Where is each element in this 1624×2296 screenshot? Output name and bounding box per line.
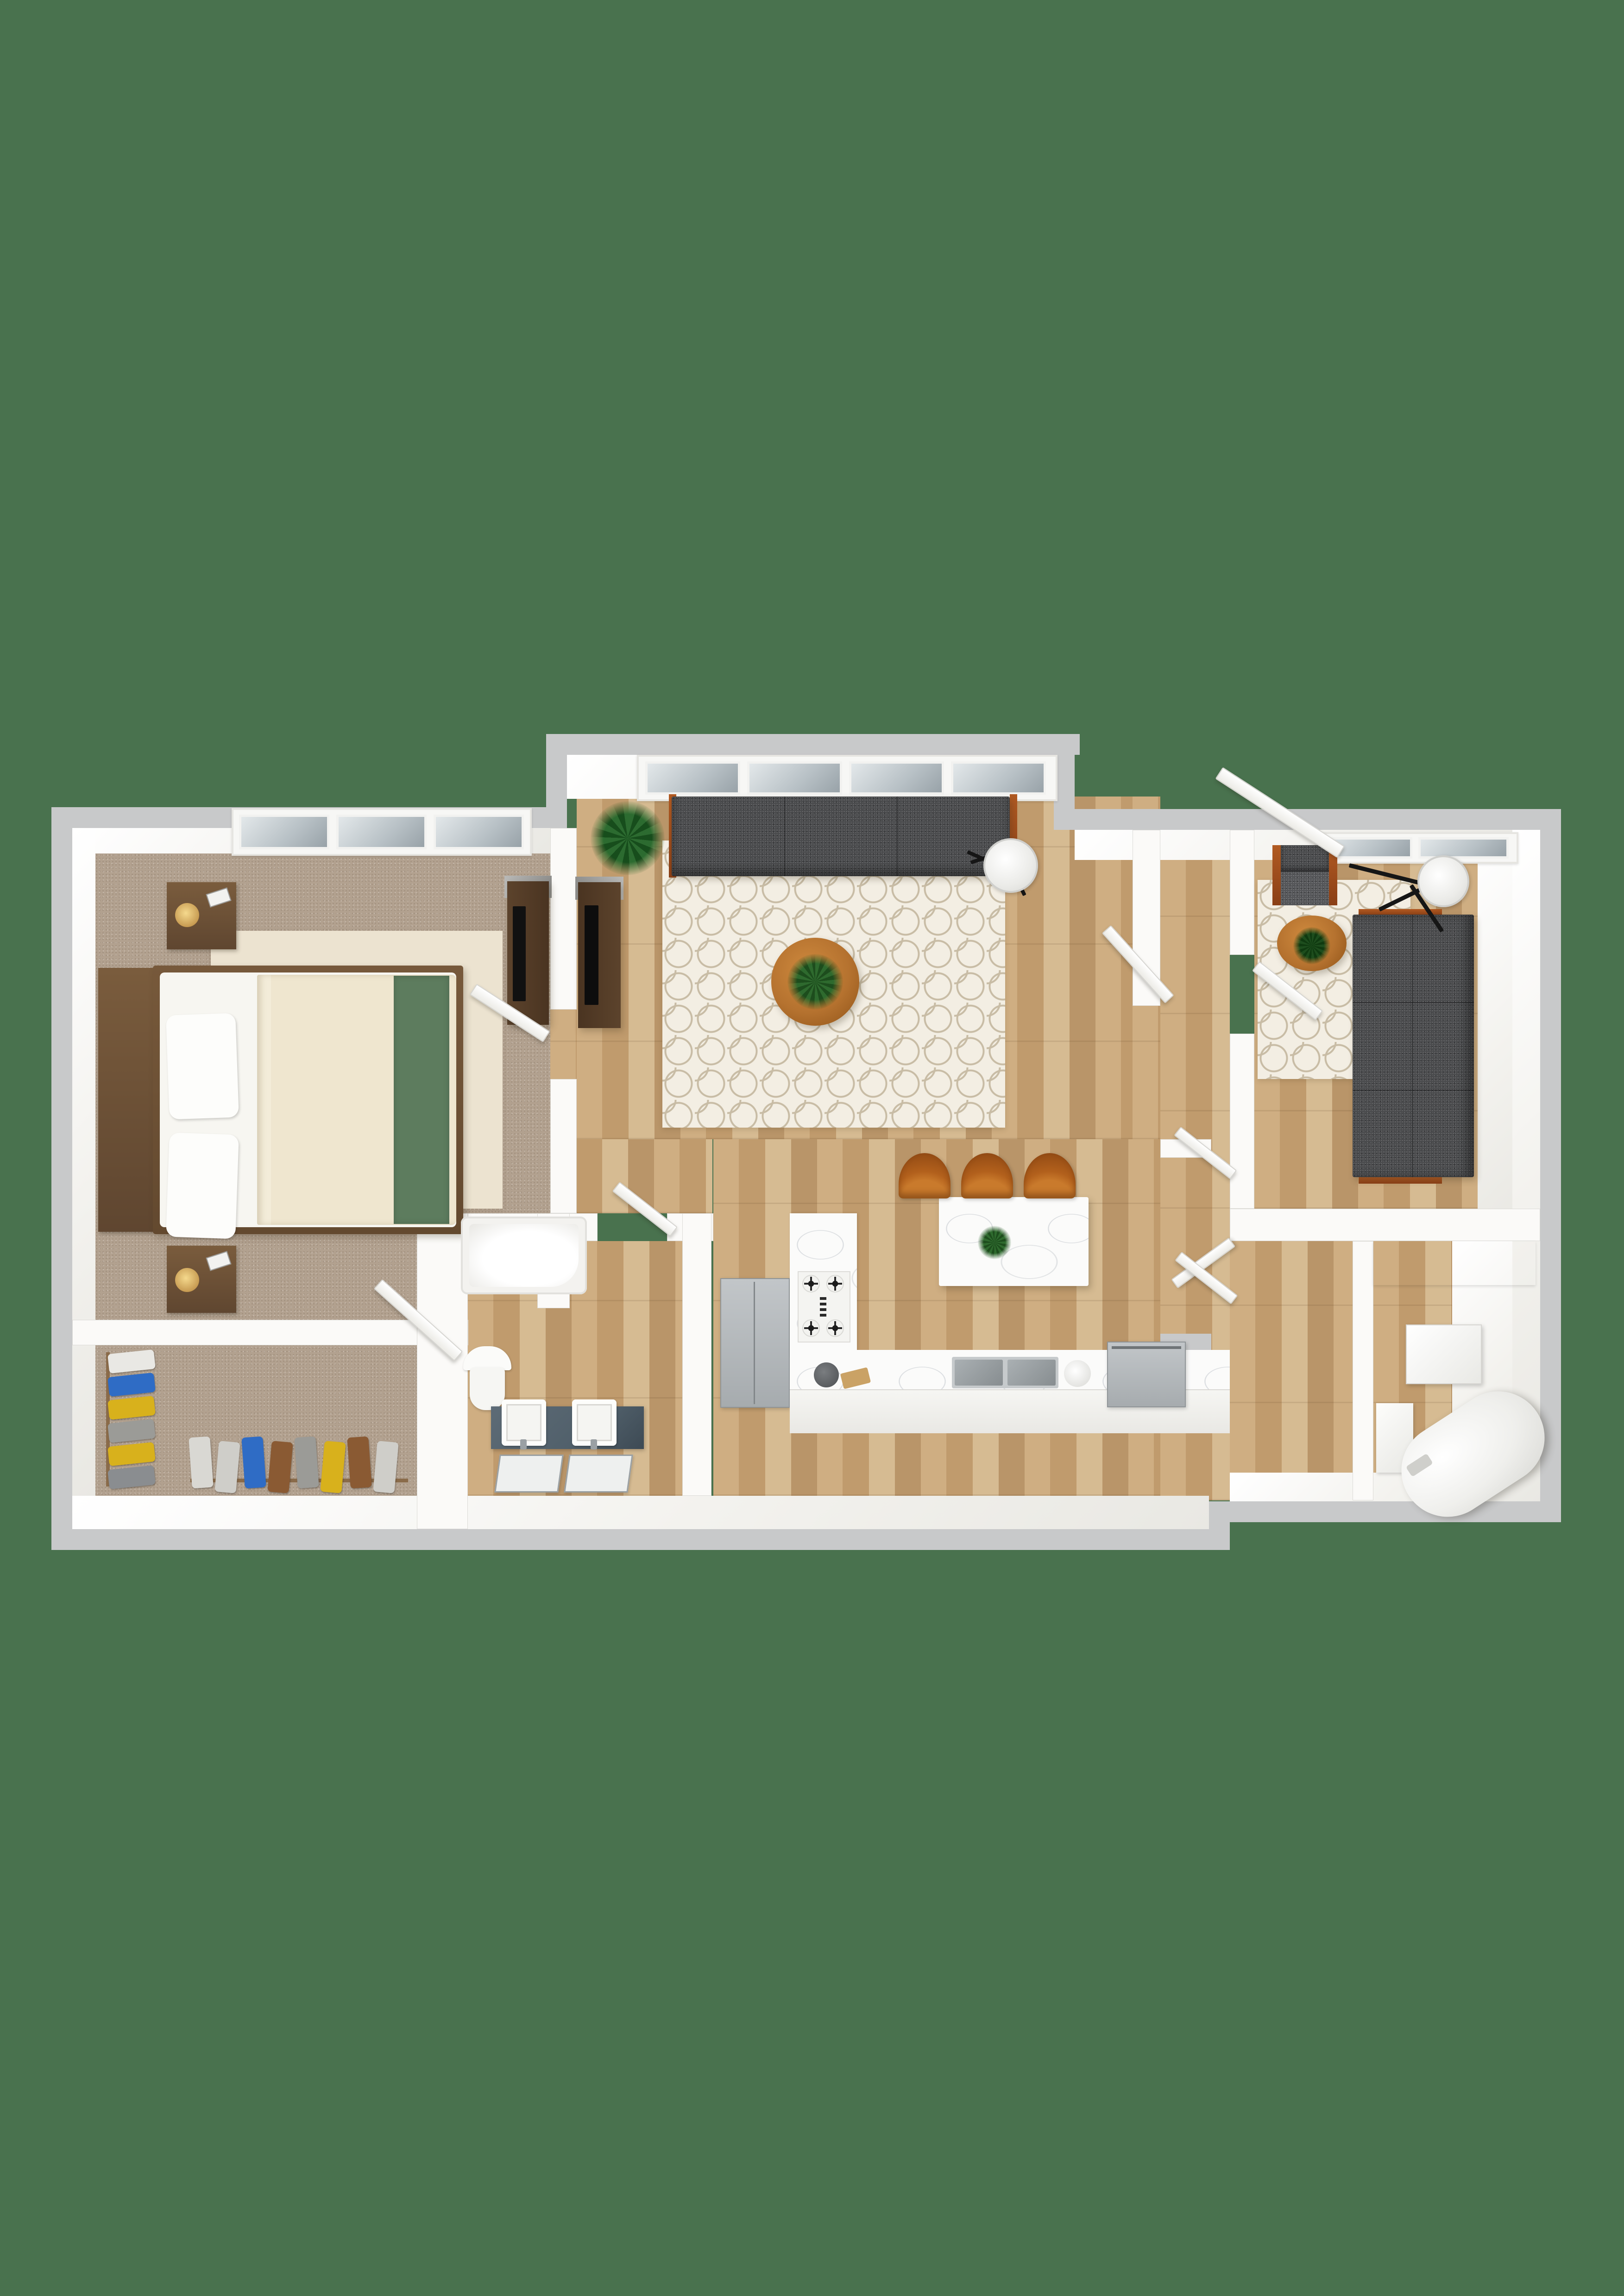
bed-runner (394, 976, 449, 1224)
sofa-cushion-seam (897, 797, 898, 876)
north-wall-den (1075, 809, 1561, 830)
garment (107, 1373, 156, 1397)
toilet-bowl (470, 1368, 505, 1410)
fridge-seam (754, 1282, 755, 1404)
window-pane (645, 761, 740, 795)
nightstand (167, 1246, 236, 1313)
potted-plant (591, 801, 665, 875)
garment (107, 1349, 156, 1374)
kitchen-island (939, 1197, 1089, 1286)
west-wall-face (72, 828, 95, 1496)
garment (107, 1419, 156, 1443)
phone (206, 887, 232, 907)
bathtub (461, 1217, 587, 1294)
closet-rack-bottom (190, 1429, 413, 1496)
south-wall-right (1209, 1501, 1561, 1522)
vanity-sink (572, 1399, 617, 1446)
coffee-maker (1064, 1360, 1091, 1387)
garment (241, 1437, 266, 1489)
hall-kitchen-wall (682, 1213, 711, 1496)
garment (373, 1441, 398, 1493)
bathtub-basin (469, 1224, 579, 1287)
den-west-wall-lower (1230, 1034, 1254, 1209)
appliance-handle (1112, 1346, 1181, 1349)
den-armchair (1272, 845, 1337, 905)
faucet (591, 1439, 597, 1449)
refrigerator (720, 1278, 790, 1408)
window-pane (747, 761, 842, 795)
bedroom-east-wall-lower (550, 1079, 577, 1213)
den-south-wall (1230, 1209, 1540, 1241)
gas-cooktop (798, 1271, 850, 1342)
bedroom-south-wall (72, 1320, 468, 1345)
floor-plan (51, 734, 1561, 1550)
lamp-shade (1417, 855, 1469, 907)
sofa-cushion-seam (1353, 1002, 1474, 1003)
utility-wall-cabinet (1406, 1324, 1482, 1384)
faucet (520, 1439, 527, 1449)
east-wall (1540, 809, 1561, 1522)
table-plant (787, 954, 843, 1010)
rear-corridor-floor (1230, 1241, 1353, 1500)
garment (214, 1441, 240, 1493)
table-lamp (175, 1268, 199, 1292)
garment (107, 1442, 156, 1466)
den-sofa-trim (1359, 1177, 1442, 1184)
cooktop-knobs (820, 1296, 826, 1317)
table-lamp (175, 903, 199, 927)
south-wall-joint (1209, 1501, 1230, 1550)
sofa-cushion-seam (1353, 1090, 1474, 1091)
headboard (98, 968, 153, 1232)
garment (107, 1465, 156, 1489)
scene-background: { "scene": { "type": "3d-floor-plan-rend… (0, 0, 1624, 2296)
vanity-sink (502, 1399, 546, 1446)
armchair-arm (1272, 845, 1281, 905)
lamp-shade (983, 838, 1038, 893)
living-tv (585, 905, 598, 1005)
west-wall (51, 807, 72, 1550)
garment (107, 1396, 156, 1420)
den-sofa (1353, 915, 1474, 1177)
bedroom-window (232, 808, 532, 856)
sofa-cushion-seam (784, 797, 785, 876)
den-table-plant (1293, 927, 1330, 964)
garment (294, 1437, 319, 1489)
living-window (637, 755, 1057, 801)
den-window (1316, 832, 1518, 864)
living-sofa (672, 797, 1010, 876)
leaning-mirror (494, 1455, 564, 1493)
bed-pillow (166, 1013, 239, 1119)
garment (347, 1437, 372, 1489)
garment (267, 1441, 293, 1493)
stainless-appliance (1107, 1342, 1186, 1407)
utility-west-wall (1353, 1241, 1373, 1500)
leaning-mirror (564, 1455, 633, 1493)
sink-basin (1007, 1360, 1056, 1386)
armchair-back (1281, 845, 1329, 872)
kettle (814, 1362, 839, 1387)
bedroom-east-wall-upper (550, 828, 577, 1010)
window-pane (239, 815, 329, 849)
window-pane (434, 815, 524, 849)
living-floor-lamp (983, 838, 1038, 893)
north-wall-living (546, 734, 1080, 755)
window-pane (336, 815, 427, 849)
phone (206, 1251, 232, 1271)
bed-pillow (166, 1132, 239, 1239)
closet-east-wall (417, 1213, 468, 1529)
garment (189, 1437, 214, 1489)
window-pane (849, 761, 944, 795)
sofa-back-seam (1412, 915, 1413, 1177)
double-sink (952, 1357, 1058, 1388)
toilet-tank (463, 1346, 511, 1370)
nightstand (167, 882, 236, 949)
south-wall-face (72, 1496, 1209, 1529)
armchair-seat (1281, 872, 1329, 905)
garment (320, 1441, 346, 1493)
window-pane (951, 761, 1046, 795)
south-wall-left (51, 1529, 1230, 1550)
den-floor-lamp (1417, 855, 1469, 907)
den-west-wall-upper (1230, 830, 1254, 955)
bedroom-tv (513, 906, 526, 1001)
utility-counter (1373, 1241, 1536, 1285)
heater-cap (1406, 1453, 1433, 1477)
island-plant (978, 1226, 1011, 1259)
sink-basin (955, 1360, 1003, 1386)
